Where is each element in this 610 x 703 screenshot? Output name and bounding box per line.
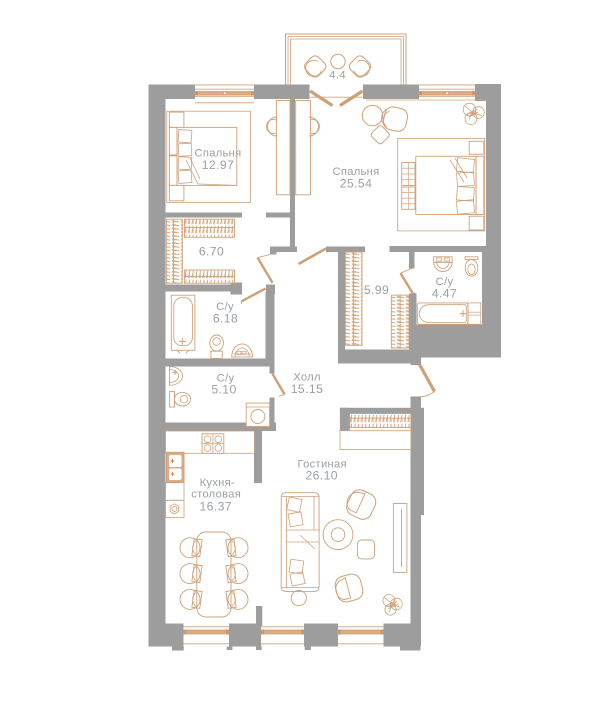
svg-text:4.47: 4.47 bbox=[432, 287, 457, 301]
svg-text:6.70: 6.70 bbox=[199, 245, 224, 259]
svg-text:25.54: 25.54 bbox=[340, 177, 373, 191]
svg-text:5.10: 5.10 bbox=[211, 383, 236, 397]
svg-text:16.37: 16.37 bbox=[199, 500, 232, 514]
svg-text:12.97: 12.97 bbox=[202, 158, 235, 172]
svg-text:4.4: 4.4 bbox=[329, 70, 346, 82]
svg-text:Кухня-: Кухня- bbox=[200, 477, 235, 489]
svg-text:15.15: 15.15 bbox=[291, 382, 324, 396]
svg-text:5.99: 5.99 bbox=[364, 283, 389, 297]
svg-text:26.10: 26.10 bbox=[305, 469, 338, 483]
svg-text:6.18: 6.18 bbox=[213, 312, 238, 326]
